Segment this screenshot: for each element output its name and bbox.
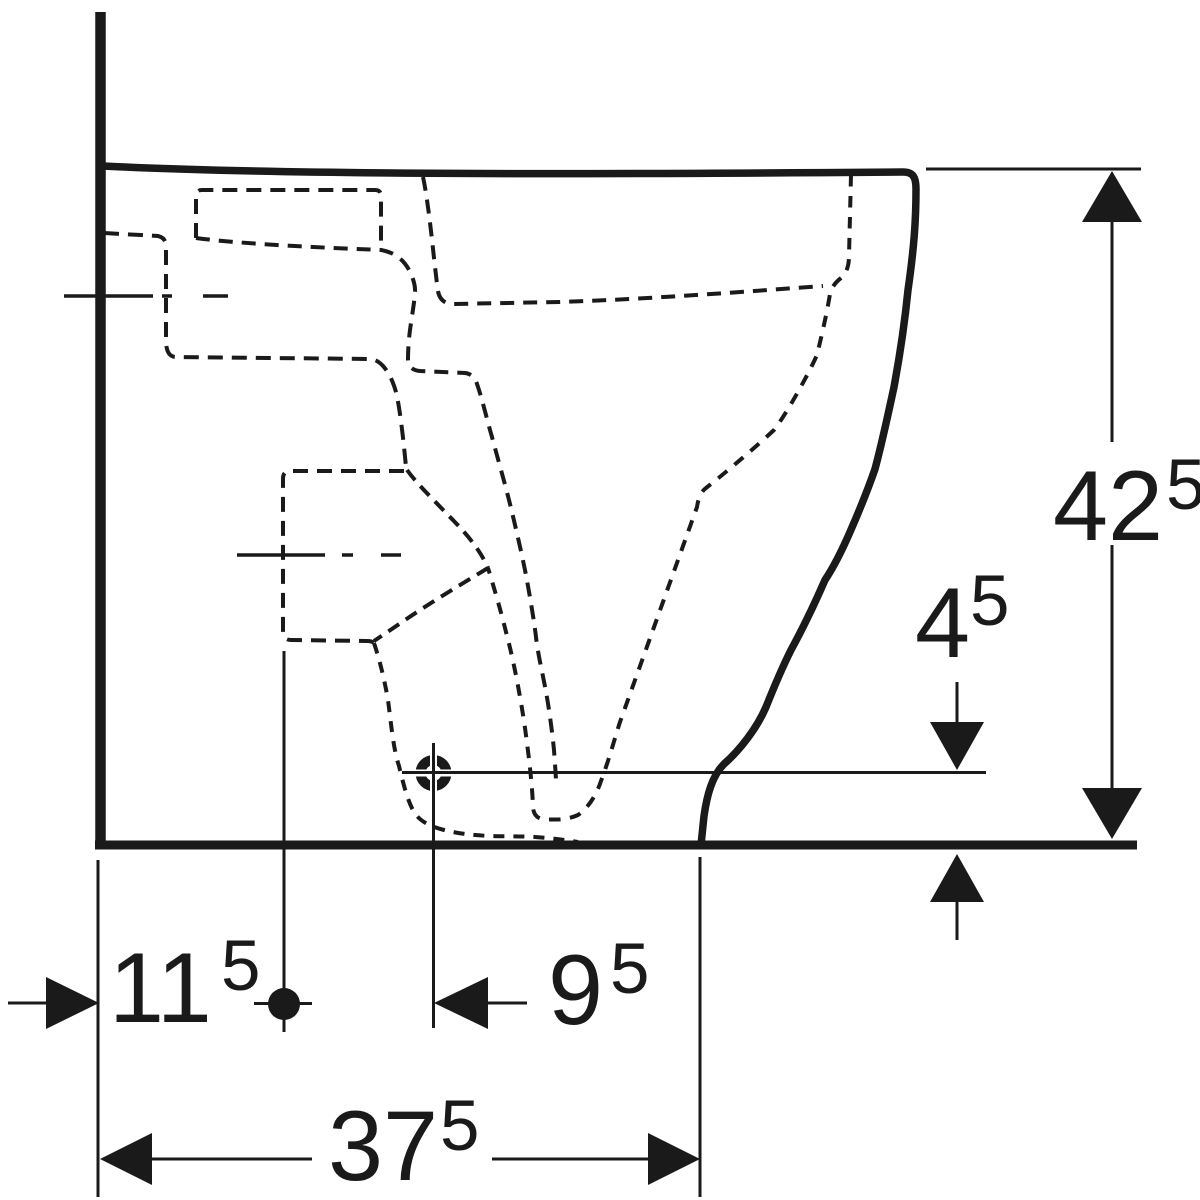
svg-text:5: 5 xyxy=(221,927,261,1006)
svg-text:5: 5 xyxy=(440,1087,480,1166)
svg-text:42: 42 xyxy=(1053,450,1163,561)
svg-text:9: 9 xyxy=(548,934,603,1045)
svg-text:4: 4 xyxy=(915,567,970,678)
svg-text:5: 5 xyxy=(610,930,650,1009)
svg-text:11: 11 xyxy=(109,932,212,1043)
svg-text:5: 5 xyxy=(970,562,1010,641)
svg-text:5: 5 xyxy=(1166,446,1200,525)
svg-text:37: 37 xyxy=(328,1090,438,1200)
